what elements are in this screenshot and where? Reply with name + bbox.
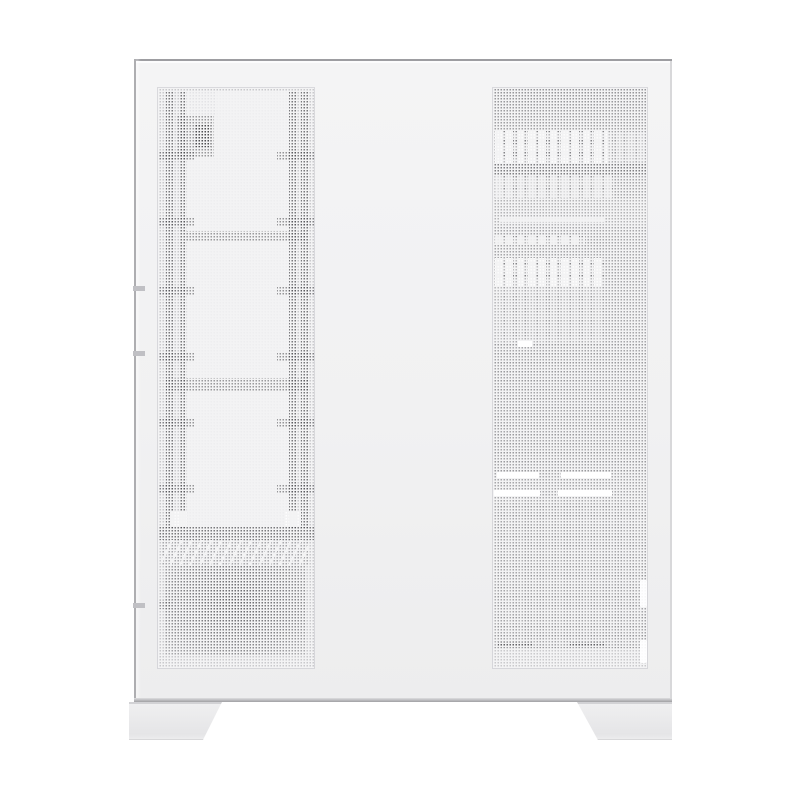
case-top-edge (134, 59, 672, 61)
panel-seam-rivet (133, 351, 145, 356)
case-foot-left (129, 702, 222, 740)
left-mesh-panel (158, 88, 314, 668)
mesh-grid-texture (493, 88, 647, 668)
panel-seam-rivet (133, 603, 145, 608)
mesh-grid-texture (158, 88, 314, 668)
cable-highlight-streak (494, 490, 540, 496)
grommet-highlight (640, 640, 647, 663)
cable-highlight-streak (497, 472, 539, 478)
case-bottom-edge (134, 698, 672, 702)
pc-case-body (134, 59, 672, 702)
cable-highlight-streak (561, 472, 611, 478)
cable-highlight-streak (558, 490, 612, 496)
panel-seam-rivet (133, 286, 145, 291)
cable-highlight-dash (518, 341, 532, 347)
grommet-highlight (640, 580, 647, 607)
case-right-edge (670, 61, 672, 702)
right-mesh-panel (493, 88, 647, 668)
case-foot-right (577, 702, 672, 740)
product-photo-canvas (0, 0, 800, 800)
